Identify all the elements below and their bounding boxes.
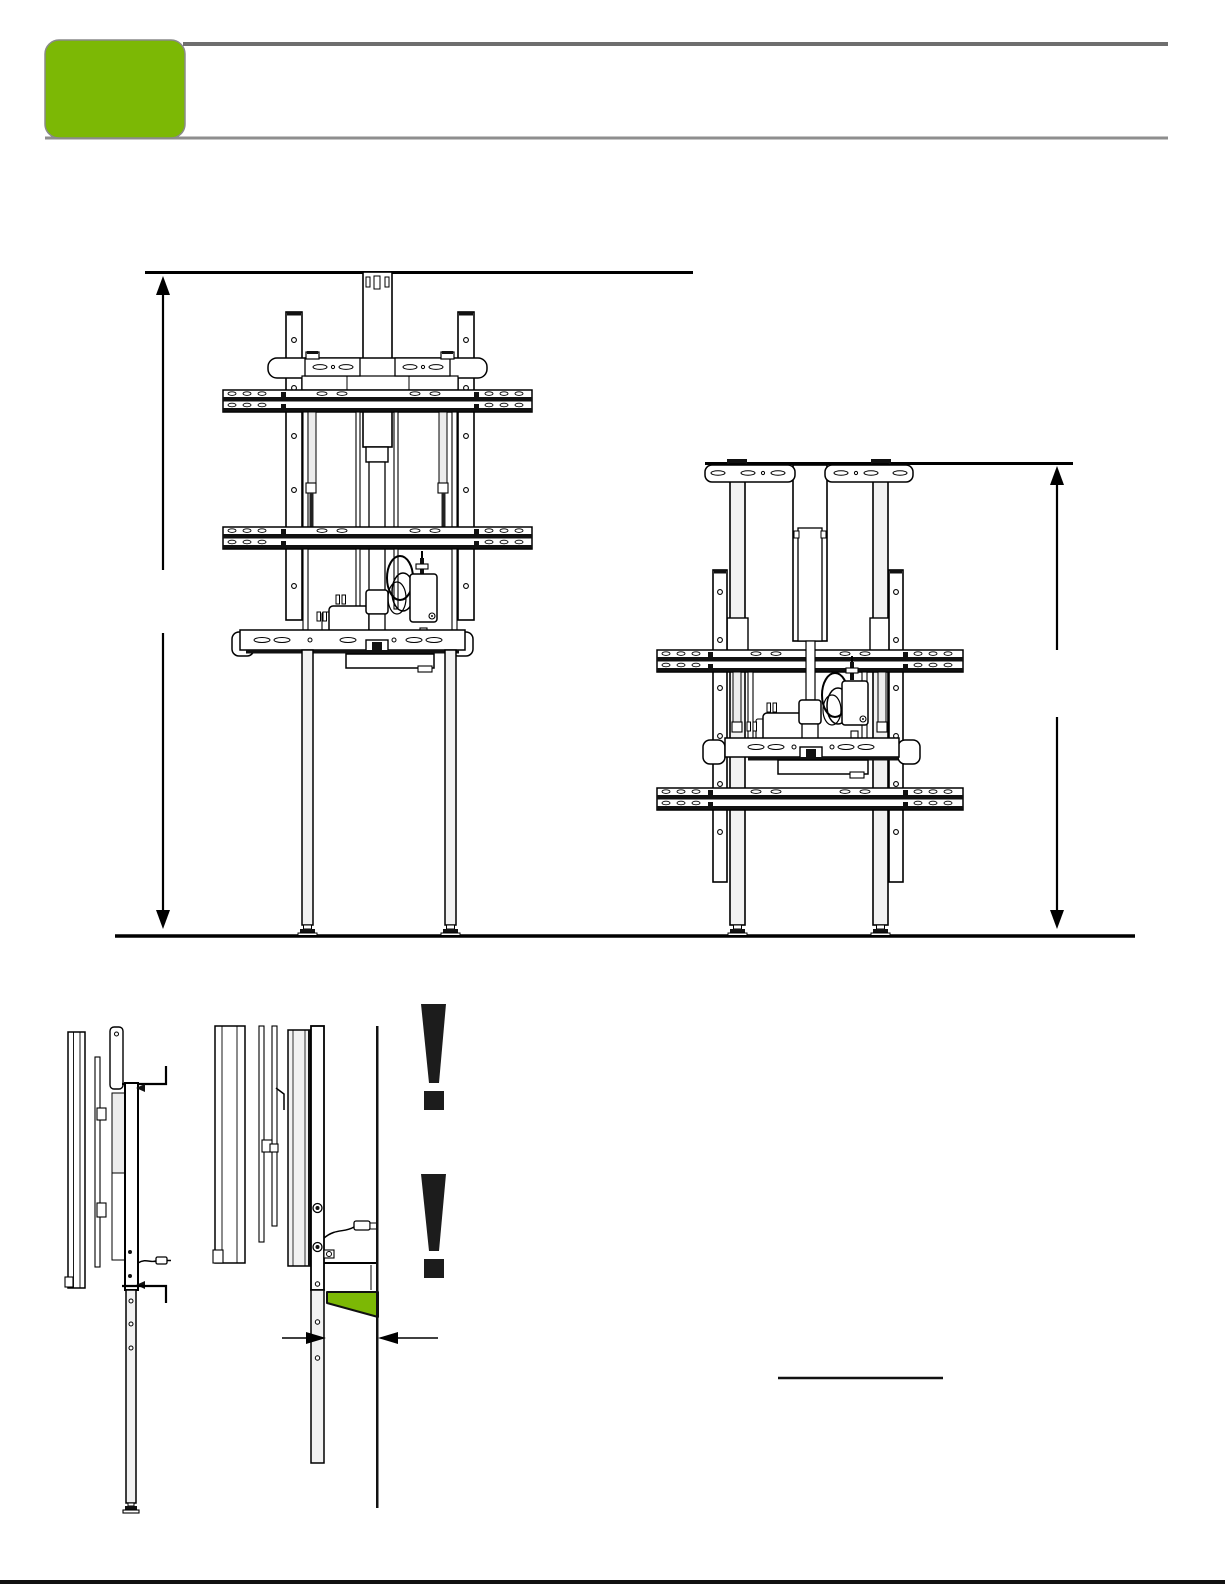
bottom-bracket-slots <box>254 638 442 643</box>
gap-dimension-arrows <box>282 1332 438 1344</box>
page-canvas <box>0 0 1225 1585</box>
page-header <box>45 40 1168 138</box>
lift-carriage-side <box>288 1030 311 1266</box>
center-lift-mast <box>793 465 827 641</box>
header-accent-tab <box>45 40 185 138</box>
upper-crossbar <box>223 390 532 412</box>
leg-side <box>311 1282 324 1463</box>
figure-front-view-lowered <box>657 459 1073 936</box>
upper-wall-arm <box>122 1066 166 1084</box>
figure-side-view-full <box>65 1027 171 1513</box>
display-panel-side <box>213 1026 245 1263</box>
height-dimension-line <box>1050 466 1064 929</box>
power-pin <box>416 551 428 576</box>
cable-connector <box>138 1257 171 1264</box>
lift-column-side <box>112 1083 145 1290</box>
height-dimension-line <box>156 276 170 929</box>
green-wedge-spacer <box>327 1292 378 1317</box>
panel-hook <box>97 1108 106 1120</box>
top-bracket-side <box>110 1027 123 1089</box>
leveling-foot <box>441 925 460 936</box>
bottom-bracket-assembly <box>232 630 473 672</box>
legs <box>298 650 460 936</box>
adapter-plate <box>272 1026 277 1226</box>
figure-front-view-raised <box>145 272 693 936</box>
leveling-foot <box>871 925 890 936</box>
actuator-rod <box>806 641 815 700</box>
figure-side-view-detail <box>213 1026 438 1508</box>
leveling-foot <box>298 925 317 936</box>
leg-side <box>123 1290 139 1513</box>
cable-connector <box>324 1221 378 1238</box>
panel-hook <box>97 1203 106 1217</box>
warning-exclamation-icon <box>421 1174 446 1278</box>
wall-line <box>376 1026 379 1508</box>
clamp-nut <box>324 1250 334 1258</box>
legs <box>728 925 890 936</box>
manual-page <box>0 0 1225 1585</box>
leveling-foot <box>728 925 747 936</box>
display-panel-side <box>65 1032 85 1288</box>
page-bottom-border <box>0 1580 1225 1584</box>
lower-crossbar <box>657 788 963 810</box>
warning-exclamation-icon <box>421 1004 446 1110</box>
adapter-plate <box>259 1026 264 1242</box>
lower-crossbar <box>223 527 532 549</box>
adapter-plate <box>95 1057 100 1267</box>
